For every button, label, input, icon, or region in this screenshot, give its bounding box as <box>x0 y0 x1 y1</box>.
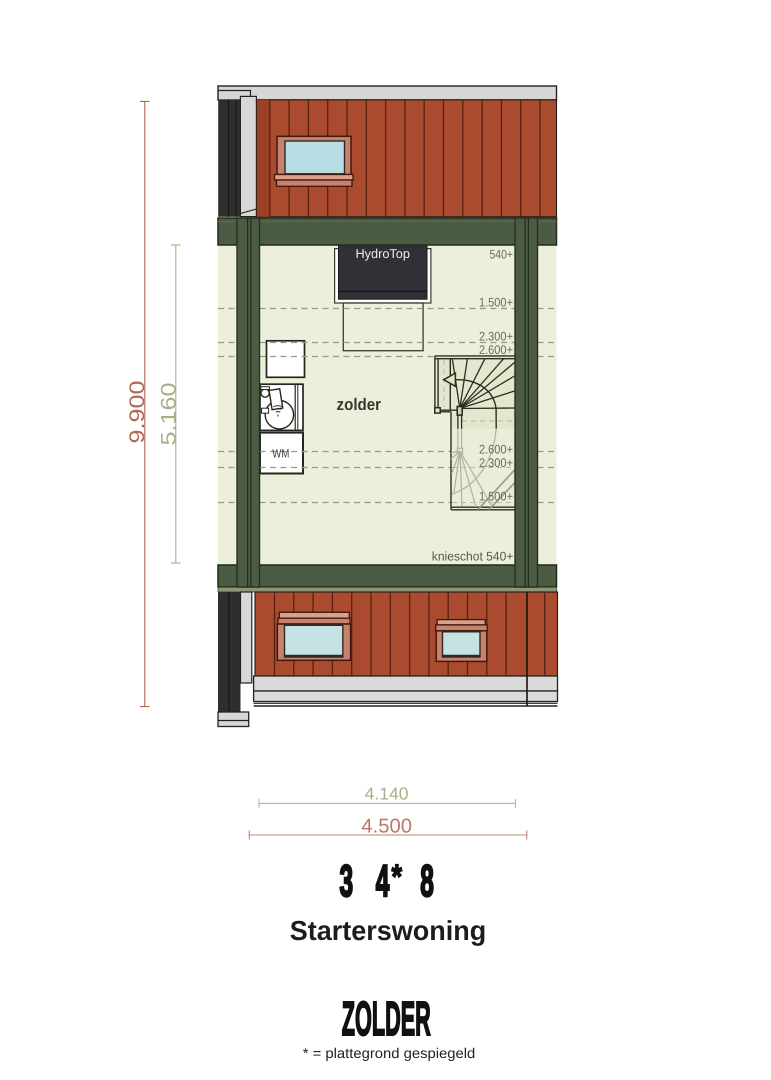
svg-text:8: 8 <box>420 857 434 906</box>
svg-text:2.300+: 2.300+ <box>479 330 513 344</box>
svg-text:Starterswoning: Starterswoning <box>290 915 487 946</box>
svg-text:*: * <box>392 858 403 896</box>
svg-text:4: 4 <box>376 857 390 906</box>
svg-text:1.500+: 1.500+ <box>479 489 513 503</box>
svg-text:3: 3 <box>339 857 353 906</box>
svg-text:4.500: 4.500 <box>361 816 412 838</box>
svg-text:2.600+: 2.600+ <box>479 443 513 457</box>
svg-text:5.160: 5.160 <box>157 383 180 446</box>
svg-text:2.300+: 2.300+ <box>479 456 513 470</box>
svg-text:9.900: 9.900 <box>126 381 149 444</box>
svg-text:2.600+: 2.600+ <box>479 343 513 357</box>
svg-text:ZOLDER: ZOLDER <box>342 993 431 1046</box>
svg-text:4.140: 4.140 <box>365 784 409 804</box>
svg-text:knieschot 540+: knieschot 540+ <box>432 550 514 564</box>
svg-text:540+: 540+ <box>490 247 514 261</box>
svg-text:1.500+: 1.500+ <box>479 296 513 310</box>
svg-text:WM: WM <box>272 447 289 461</box>
svg-text:HydroTop: HydroTop <box>355 246 410 261</box>
svg-text:zolder: zolder <box>337 395 382 414</box>
svg-text:* = plattegrond gespiegeld: * = plattegrond gespiegeld <box>303 1046 476 1062</box>
